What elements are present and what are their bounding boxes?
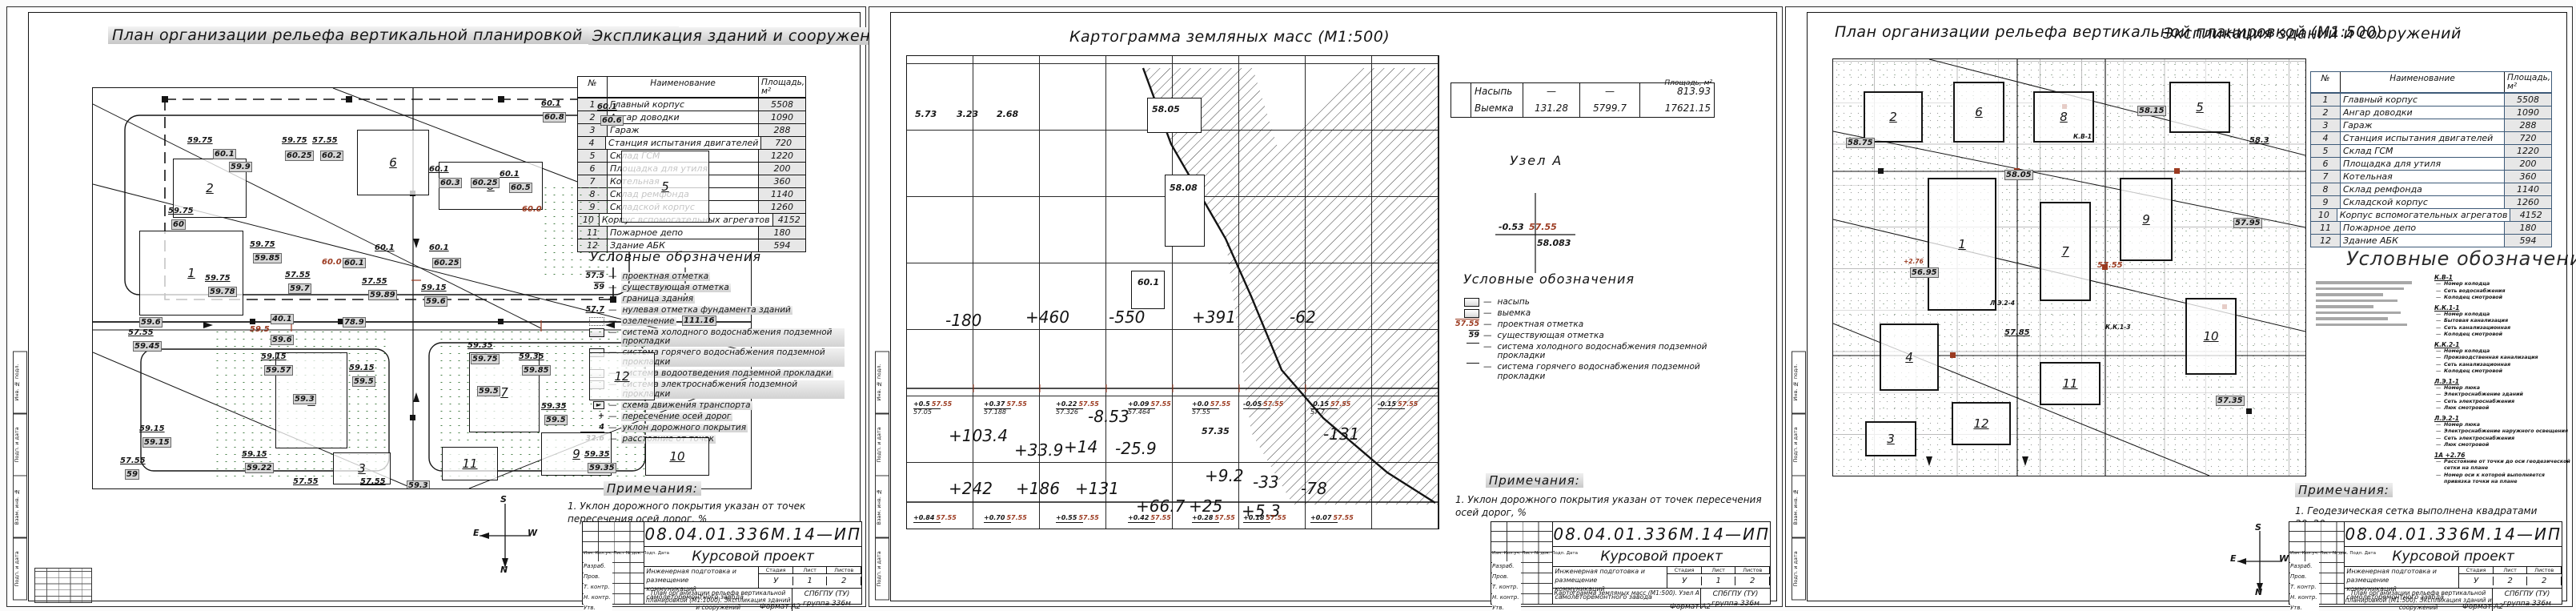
row-area: 594 xyxy=(759,239,805,251)
format-label: Формат А2 xyxy=(760,603,800,611)
cell xyxy=(1451,100,1471,117)
volume-value: +131 xyxy=(1075,479,1119,498)
uni-name: СПбГПУ (ТУ) xyxy=(2505,590,2550,598)
existing-mark: 57.464 xyxy=(1128,408,1155,416)
volume-value: +14 xyxy=(1064,437,1097,456)
signature-label: Разраб. xyxy=(584,561,612,572)
volume-value: -131 xyxy=(1323,424,1359,444)
row-num: 9 xyxy=(2311,196,2341,208)
stage-table: Стадия Лист Листов У 1 2 xyxy=(759,567,861,588)
compass-n: N xyxy=(2255,587,2262,597)
volume-value: 58.05 xyxy=(1152,104,1180,115)
signature-rows: Разраб.Пров.Т. контр.Н. контр.Утв. xyxy=(584,561,612,611)
callout-text: Бытовая канализация xyxy=(2434,318,2570,325)
elevation-label: 59.6 xyxy=(424,296,447,307)
legend-dash: — xyxy=(1483,332,1492,341)
row-area: 200 xyxy=(759,163,805,175)
sheet1-legend-heading: Условные обозначения xyxy=(590,249,761,264)
row-area: 1260 xyxy=(759,201,805,213)
row-num: 3 xyxy=(578,124,608,136)
project-type: Курсовой проект xyxy=(644,547,861,567)
fill-a: — xyxy=(1523,83,1580,100)
callout-text: Производственная канализация xyxy=(2434,355,2570,362)
sheets-h: Листов xyxy=(827,567,861,573)
elevation-label: 59.3 xyxy=(407,480,430,489)
elevation-label: 57.55 xyxy=(2097,261,2123,270)
elevation-label: 60.2 xyxy=(320,151,343,161)
legend-item: 57.7 — нулевая отметка фундамента зданий xyxy=(580,306,845,316)
revision-grid: Изм. Кол.уч. Лист № док. Подп. Дата Разр… xyxy=(2289,522,2345,604)
sheet-v: 1 xyxy=(793,577,828,585)
sheet3-notes-heading: Примечания: xyxy=(2295,483,2393,497)
elevation-label: 60.5 xyxy=(509,183,532,193)
elevation-label: 59.75 xyxy=(282,136,307,145)
callout-text: Л.Э.2-1 xyxy=(2434,415,2570,422)
uzel-a-title: Узел А xyxy=(1510,153,1563,168)
grid-node-mark: +0.7057.55 xyxy=(984,509,1027,523)
building-outline: 5 xyxy=(2169,82,2230,133)
signature-label: Т. контр. xyxy=(584,582,612,593)
cut-label: Выемка xyxy=(1471,100,1523,117)
legend-symbol: 57.55 xyxy=(1455,320,1479,328)
sheet2-margin-labels: Инв. № подл.Подп. и датаВзам. инв. №Подп… xyxy=(875,352,889,600)
existing-mark xyxy=(1056,522,1083,523)
row-area: 1260 xyxy=(2505,196,2551,208)
row-name: Корпус вспомогательных агрегатов xyxy=(2337,209,2511,221)
elevation-label: +2.76 xyxy=(1904,258,1924,265)
legend-dash: — xyxy=(1483,298,1492,308)
building-number: 9 xyxy=(2142,212,2150,227)
legend-dash: — xyxy=(1483,363,1492,372)
row-area: 360 xyxy=(2505,171,2551,183)
building-number: 2 xyxy=(206,181,214,195)
building-outline: 2 xyxy=(1864,91,1923,143)
cartogram-grid: -180+460-550+391-62+103.4+33.9+14-8.53-2… xyxy=(906,55,1439,529)
grid-node-mark: +0.4257.55 xyxy=(1128,509,1171,523)
elevation-label: 40.1 xyxy=(271,314,294,324)
volume-value: -78 xyxy=(1301,479,1327,498)
row-name: Станция испытания двигателей xyxy=(2341,132,2505,144)
sheet3-legend-heading: Условные обозначения xyxy=(2346,247,2576,270)
legend-item: 57.55 — проектная отметка xyxy=(1455,320,1743,330)
sheets-v: 2 xyxy=(1735,577,1770,585)
sheet1-margin-labels: Инв. № подл.Подп. и датаВзам. инв. №Подп… xyxy=(13,352,27,600)
row-area: 720 xyxy=(2505,132,2551,144)
volume-value: +242 xyxy=(949,479,993,498)
elevation-label: 60.0 xyxy=(522,205,542,214)
elevation-label: 60.25 xyxy=(285,151,314,161)
row-name: Склад ГСМ xyxy=(2341,145,2505,157)
building-number: 7 xyxy=(2061,244,2069,259)
building-number: 2 xyxy=(1889,110,1897,124)
table-row: 3 Гараж 288 xyxy=(2311,119,2551,131)
elevation-label: 58.75 xyxy=(1846,138,1875,148)
explication-header: № Наименование Площадь, м² xyxy=(2311,72,2551,93)
margin-label: Подп. и дата xyxy=(875,538,889,601)
elevation-label: 60.3 xyxy=(439,178,462,188)
row-num: 3 xyxy=(2311,119,2341,131)
row-area: 1090 xyxy=(759,111,805,123)
working-mark: +0.09 xyxy=(1128,400,1149,408)
sheet2-title: Картограмма земляных масс (М1:500) xyxy=(1069,28,1390,46)
signature-label: Пров. xyxy=(1492,572,1521,582)
compass-s: S xyxy=(500,494,507,504)
volume-value: +33.9 xyxy=(1014,440,1063,460)
callout-text: Номер колодца xyxy=(2434,312,2570,319)
building-outline: 9 xyxy=(2120,178,2173,261)
elevation-label: 78.9 xyxy=(343,317,366,328)
sheet-h: Лист xyxy=(1702,567,1736,573)
building-outline: 11 xyxy=(2040,362,2101,405)
stage-table: Стадия Лист Листов У 2 2 xyxy=(2459,567,2562,588)
grid-node-mark: +0.8457.55 xyxy=(913,509,957,523)
volume-value: -550 xyxy=(1109,308,1145,327)
group: группа 336м xyxy=(803,600,851,608)
volumes-table: Площадь, м² Насыпь — — 813.93 Выемка 131… xyxy=(1451,82,1715,118)
callout-text: Расстояние от точки до оси геодезической… xyxy=(2434,459,2570,472)
elevation-label: 59.75 xyxy=(205,274,231,283)
legend-item: — система горячего водоснабжения подземн… xyxy=(1455,363,1743,381)
elevation-label: К.В-1 xyxy=(2073,133,2092,140)
building-number: 7 xyxy=(500,385,508,400)
explication-rows: 1 Главный корпус 5508 2 Ангар доводки 10… xyxy=(2311,93,2551,247)
volume-value: +103.4 xyxy=(949,426,1008,445)
signature-label: Утв. xyxy=(1492,603,1521,611)
design-mark: 57.55 xyxy=(1078,400,1098,408)
volume-value: -180 xyxy=(945,311,981,330)
row-num: 6 xyxy=(2311,158,2341,170)
margin-label: Взам. инв. № xyxy=(1792,476,1806,538)
org-line1: Инженерная подготовка и размещение xyxy=(1555,568,1645,584)
legend-dash: — xyxy=(608,317,617,327)
org-line1: Инженерная подготовка и размещение xyxy=(646,568,736,584)
row-area: 1140 xyxy=(759,188,805,200)
callout-text: Колодец смотровой xyxy=(2434,332,2570,339)
project-type: Курсовой проект xyxy=(2345,547,2562,567)
volume-value: +391 xyxy=(1192,308,1236,327)
group: группа 336м xyxy=(2503,600,2551,608)
elevation-label: 60.1 xyxy=(429,243,449,252)
uzel-a-detail: -0.53 57.55 58.083 xyxy=(1487,193,1583,273)
sheet-plan-m500: Инв. № подл.Подп. и датаВзам. инв. №Подп… xyxy=(1785,6,2573,607)
corner-stamp xyxy=(34,568,92,603)
legend-symbol: ⌐ xyxy=(580,295,604,303)
row-name: Котельная xyxy=(2341,171,2505,183)
row-num: 1 xyxy=(2311,94,2341,106)
volume-value: -33 xyxy=(1253,472,1279,492)
table-row: 10 Корпус вспомогательных агрегатов 4152 xyxy=(2311,208,2551,221)
fill-b: — xyxy=(1580,83,1640,100)
volumes-overlay: Площадь, м² xyxy=(1664,80,1712,88)
elevation-label: 59.15 xyxy=(261,352,287,361)
row-num: 5 xyxy=(2311,145,2341,157)
design-mark: 57.55 xyxy=(1006,400,1026,408)
revision-grid: Изм. Кол.уч. Лист № док. Подп. Дата Разр… xyxy=(583,522,644,604)
legend-symbol xyxy=(1455,343,1479,347)
existing-mark: 57.7 xyxy=(1310,408,1338,416)
legend-label: система горячего водоснабжения подземной… xyxy=(1496,363,1744,381)
row-num: 12 xyxy=(2311,235,2341,247)
signature-label: Разраб. xyxy=(1492,561,1521,572)
working-mark: +0.55 xyxy=(1056,514,1077,521)
elevation-label: 59.78 xyxy=(208,287,237,297)
callout-text: 1А +2.76 xyxy=(2434,452,2570,459)
table-row: 5 Склад ГСМ 1220 xyxy=(2311,144,2551,157)
uzel-design-mark: 57.55 xyxy=(1529,222,1557,232)
row-num: 5 xyxy=(578,150,608,162)
legend-dash: — xyxy=(608,295,617,304)
col-area: Площадь, м² xyxy=(2505,72,2551,92)
row-name: Ангар доводки xyxy=(2341,107,2505,119)
compass-w: W xyxy=(2279,553,2289,564)
uzel-a-cross xyxy=(1487,193,1583,273)
elevation-label: 57.55 xyxy=(128,328,154,337)
signature-label: Т. контр. xyxy=(1492,582,1521,593)
working-mark: +0.0 xyxy=(1192,400,1209,408)
compass-n: N xyxy=(500,565,508,575)
elevation-label: 57.55 xyxy=(312,136,338,145)
building-number: 5 xyxy=(661,179,669,194)
row-name: Гараж xyxy=(608,124,759,136)
volume-value: 57.35 xyxy=(1202,426,1230,436)
elevation-label: 59.5 xyxy=(250,325,270,334)
sheets-h: Листов xyxy=(2527,567,2562,573)
building-number: 1 xyxy=(187,266,195,280)
existing-mark xyxy=(1192,522,1219,523)
elevation-label: 57.55 xyxy=(285,271,311,279)
sheet3-title-overlay: Экспликация зданий и сооружений xyxy=(2159,25,2466,42)
elevation-label: 57.55 xyxy=(362,277,387,286)
row-name: Гараж xyxy=(2341,119,2505,131)
sheet2-note: 1. Уклон дорожного покрытия указан от то… xyxy=(1455,494,1767,519)
row-area: 288 xyxy=(759,124,805,136)
existing-mark: 57.188 xyxy=(984,408,1011,416)
legend-dash: — xyxy=(1483,320,1492,330)
elevation-label: 59.9 xyxy=(229,162,252,172)
sheet3-title: План организации рельефа вертикальной пл… xyxy=(1831,23,2559,44)
building-number: 11 xyxy=(462,456,477,471)
working-mark: +0.5 xyxy=(913,400,930,408)
signature-label: Н. контр. xyxy=(2290,593,2319,603)
elevation-label: К.К.1-3 xyxy=(2105,324,2131,331)
legend-label: насыпь xyxy=(1496,298,1531,308)
uzel-working-mark: -0.53 xyxy=(1499,222,1524,232)
signature-label: Т. контр. xyxy=(2290,582,2319,593)
elevation-label: 57.95 xyxy=(2233,218,2262,228)
callout-text: Люк смотровой xyxy=(2434,405,2570,412)
elevation-label: 58.3 xyxy=(2249,136,2269,145)
uni-name: СПбГПУ (ТУ) xyxy=(804,590,850,598)
legend-item: — выемка xyxy=(1455,309,1743,319)
elevation-label: 59.35 xyxy=(584,450,610,459)
volume-value: +9.2 xyxy=(1205,466,1244,485)
row-area: 594 xyxy=(2505,235,2551,247)
margin-label: Инв. № подл. xyxy=(1792,352,1806,414)
row-area: 4152 xyxy=(2510,209,2551,221)
elevation-label: 59.35 xyxy=(541,402,567,411)
building-number: 4 xyxy=(1905,350,1913,364)
table-row: 9 Складской корпус 1260 xyxy=(2311,195,2551,208)
elevation-label: 57.55 xyxy=(360,477,386,486)
existing-mark xyxy=(1128,522,1155,523)
row-area: 288 xyxy=(2505,119,2551,131)
grid-node-mark: +0.3757.55 57.188 xyxy=(984,396,1027,416)
legend-symbol: 59 xyxy=(580,283,604,291)
existing-mark xyxy=(984,522,1011,523)
sheet1-notes-heading: Примечания: xyxy=(604,481,701,496)
building-number: 11 xyxy=(2062,376,2077,391)
legend-item: — система холодного водоснабжения подзем… xyxy=(1455,343,1743,361)
stage-table: Стадия Лист Листов У 1 2 xyxy=(1667,567,1770,588)
row-name: Склад ремфонда xyxy=(2341,183,2505,195)
working-mark: +0.42 xyxy=(1128,514,1149,521)
unreadable-legend-column xyxy=(2316,278,2412,329)
building-outline: 6 xyxy=(1953,82,2004,143)
signature-rows: Разраб.Пров.Т. контр.Н. контр.Утв. xyxy=(1492,561,1521,611)
elevation-label: 60.1 xyxy=(375,243,395,252)
legend-dash: — xyxy=(608,283,617,293)
legend-label: выемка xyxy=(1496,309,1533,319)
design-mark: 57.55 xyxy=(1210,400,1230,408)
cut-row: Выемка 131.28 5799.7 17621.15 xyxy=(1451,100,1714,117)
legend-item: 57.5 — проектная отметка xyxy=(580,272,845,282)
elevation-label: 57.85 xyxy=(2004,328,2030,337)
row-name: Пожарное депо xyxy=(2341,222,2505,234)
callout-text: Номер люка xyxy=(2434,422,2570,429)
legend-dash: — xyxy=(608,306,617,316)
elevation-label: 60.0 xyxy=(322,258,342,267)
legend-symbol xyxy=(1455,298,1479,307)
row-name: Станция испытания двигателей xyxy=(606,137,761,149)
legend-symbol: 59 xyxy=(1455,332,1479,340)
table-row: 8 Склад ремфонда 1140 xyxy=(2311,183,2551,195)
sheet-plan-m1000: Инв. № подл.Подп. и датаВзам. инв. №Подп… xyxy=(6,6,866,607)
row-name: Ангар доводки xyxy=(608,111,759,123)
design-mark: 57.55 xyxy=(1263,400,1283,408)
elevation-label: 59.3 xyxy=(293,394,316,404)
explication-table: № Наименование Площадь, м² 1 Главный кор… xyxy=(2310,71,2552,247)
compass-w: W xyxy=(528,528,537,538)
legend-label: существующая отметка xyxy=(1496,332,1606,341)
elevation-label: 59.35 xyxy=(467,341,493,350)
sheet1-compass: S E W N xyxy=(476,497,534,574)
row-name: Складской корпус xyxy=(2341,196,2505,208)
elevation-label: 59.15 xyxy=(242,450,267,459)
elevation-label: 111.16 xyxy=(682,316,716,326)
elevation-label: 59.5 xyxy=(544,415,568,425)
stage-v: У xyxy=(759,577,793,585)
table-row: 7 Котельная 360 xyxy=(2311,170,2551,183)
elevation-label: 59.6 xyxy=(271,335,294,345)
sheet3-titleblock: Изм. Кол.уч. Лист № док. Подп. Дата Разр… xyxy=(2289,521,2562,605)
elevation-label: 59.35 xyxy=(588,463,616,473)
col-num: № xyxy=(2311,72,2341,92)
signature-label: Разраб. xyxy=(2290,561,2319,572)
volume-value: 2.68 xyxy=(997,109,1018,119)
grid-node-mark: +0.5557.55 xyxy=(1056,509,1099,523)
callout-text: Номер оси к которой выполняется привязка… xyxy=(2434,472,2570,486)
cut-a: 131.28 xyxy=(1523,100,1580,117)
elevation-label: 60.1 xyxy=(500,170,520,179)
margin-label: Инв. № подл. xyxy=(875,352,889,414)
callout-text: Электроснабжение наружного освещения xyxy=(2434,428,2570,436)
elevation-label: 56.95 xyxy=(1910,267,1939,278)
building-outline: 10 xyxy=(2185,298,2237,375)
elevation-label: 59.89 xyxy=(368,290,397,300)
callout-text: Сеть канализационная xyxy=(2434,362,2570,369)
signature-label: Пров. xyxy=(2290,572,2319,582)
working-mark: +0.07 xyxy=(1310,514,1331,521)
existing-mark xyxy=(913,522,941,523)
stage-h: Стадия xyxy=(759,567,793,573)
existing-mark xyxy=(1243,522,1270,523)
row-num: 4 xyxy=(578,137,606,149)
revision-columns: Изм. Кол.уч. Лист № док. Подп. Дата xyxy=(1492,551,1578,556)
volume-value: -62 xyxy=(1290,308,1316,327)
design-mark: 57.55 xyxy=(1398,400,1418,408)
elevation-label: 58.05 xyxy=(2004,170,2033,180)
building-number: 6 xyxy=(389,155,397,170)
existing-mark: 57.55 xyxy=(1192,408,1219,416)
existing-mark xyxy=(1243,408,1270,409)
project-type: Курсовой проект xyxy=(1553,547,1770,567)
row-area: 180 xyxy=(759,227,805,239)
building-outline: 4 xyxy=(1880,324,1939,391)
sheet1-titleblock: Изм. Кол.уч. Лист № док. Подп. Дата Разр… xyxy=(582,521,862,605)
legend-label: нулевая отметка фундамента зданий xyxy=(621,306,792,316)
elevation-label: 59.6 xyxy=(139,317,163,328)
working-mark: -0.15 xyxy=(1310,400,1329,408)
building-number: 12 xyxy=(614,369,629,384)
legend-dash: — xyxy=(1483,343,1492,352)
row-area: 1220 xyxy=(2505,145,2551,157)
sheet1-title-overlay: Экспликация зданий и сооружений xyxy=(588,27,895,45)
legend-label: озеленение xyxy=(621,317,676,327)
uni-name: СПбГПУ (ТУ) xyxy=(1713,590,1759,598)
grid-node-mark: -0.0557.55 xyxy=(1243,396,1283,409)
university: СПбГПУ (ТУ) группа 336м xyxy=(1701,589,1770,609)
working-mark: +0.22 xyxy=(1056,400,1077,408)
row-num: 7 xyxy=(2311,171,2341,183)
compass-e: E xyxy=(473,528,479,538)
document-code: 08.04.01.336М.14—ИП xyxy=(2345,522,2562,547)
existing-mark xyxy=(1310,522,1338,523)
row-num: 6 xyxy=(578,163,608,175)
elevation-label: 59 xyxy=(125,469,139,480)
margin-label: Подп. и дата xyxy=(13,414,27,476)
legend-symbol xyxy=(1455,363,1479,367)
building-number: 1 xyxy=(1958,237,1966,251)
legend-label: граница здания xyxy=(621,295,696,304)
table-row: 1 Главный корпус 5508 xyxy=(2311,93,2551,106)
elevation-label: 59.57 xyxy=(264,365,293,376)
elevation-label: 59.85 xyxy=(253,253,282,263)
design-mark: 57.55 xyxy=(1330,400,1350,408)
callout-text: Люк смотровой xyxy=(2434,442,2570,449)
row-area: 1140 xyxy=(2505,183,2551,195)
building-outline: 3 xyxy=(1865,421,1916,456)
margin-label: Подп. и дата xyxy=(875,414,889,476)
explication-header: № Наименование Площадь, м² xyxy=(578,77,805,98)
design-mark: 57.55 xyxy=(1266,514,1286,521)
signature-label: Утв. xyxy=(2290,603,2319,611)
sheet1-title: План организации рельефа вертикальной пл… xyxy=(108,26,837,47)
elevation-label: 57.35 xyxy=(2216,396,2245,406)
grid-node-mark: -0.1557.55 57.7 xyxy=(1310,396,1350,416)
volume-value: 5.73 xyxy=(915,109,937,119)
elevation-label: 59.35 xyxy=(519,352,544,361)
row-area: 5508 xyxy=(759,98,805,111)
